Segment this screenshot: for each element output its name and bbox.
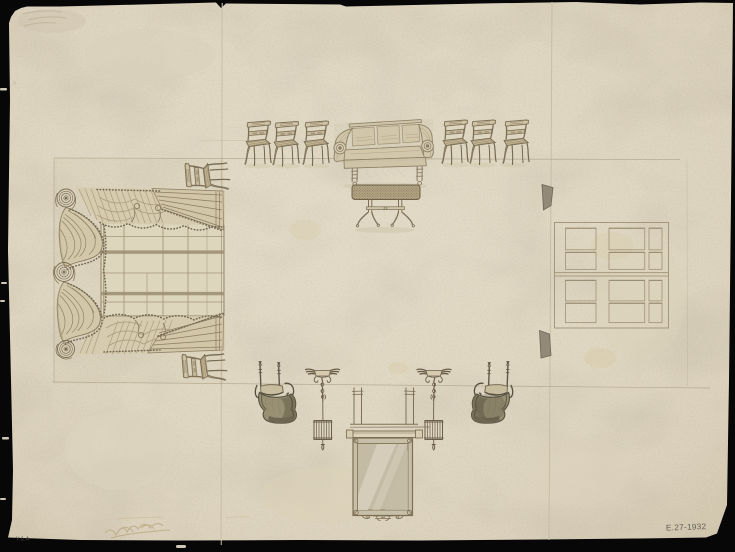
svg-text:E.27-1932: E.27-1932: [666, 522, 707, 532]
svg-text:V.&.A.: V.&.A.: [16, 537, 31, 543]
